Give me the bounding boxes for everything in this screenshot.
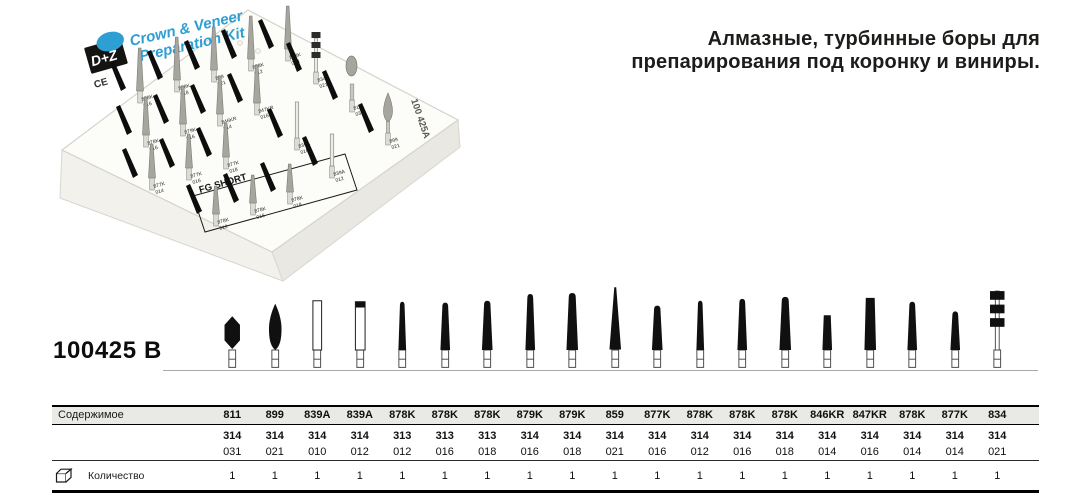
- bur-silhouette: [296, 274, 339, 370]
- row-quantity: Количество 1111111111111111111: [52, 461, 1039, 493]
- quantity-cell: 1: [466, 470, 509, 482]
- parcel-icon: [55, 468, 76, 484]
- bur-code-cell: 877K: [636, 407, 679, 424]
- bur-silhouette: [679, 274, 722, 370]
- bur-silhouette: [466, 274, 509, 370]
- iso-shank-cell: 313: [466, 430, 509, 442]
- lid-hole: [256, 49, 261, 54]
- row-size: 0310210100120120160180160180210160120160…: [52, 443, 1039, 461]
- size-cell: 016: [636, 446, 679, 458]
- size-cell: 031: [211, 446, 254, 458]
- size-cell: 012: [679, 446, 722, 458]
- iso-shank-cell: 313: [424, 430, 467, 442]
- quantity-cell: 1: [636, 470, 679, 482]
- iso-shank-cell: 314: [296, 430, 339, 442]
- quantity-cell: 1: [934, 470, 977, 482]
- heading-line-1: Алмазные, турбинные боры для: [480, 28, 1040, 51]
- bur-code-cell: 878K: [466, 407, 509, 424]
- bur-silhouette: [594, 274, 637, 370]
- bur-silhouette: [509, 274, 552, 370]
- iso-shank-cell: 314: [509, 430, 552, 442]
- bur-code-cell: 878K: [721, 407, 764, 424]
- size-cell: 016: [721, 446, 764, 458]
- bur-silhouette: [211, 274, 254, 370]
- size-cell: 018: [764, 446, 807, 458]
- bur-code-cell: 878K: [424, 407, 467, 424]
- bur-code-cell: 878K: [381, 407, 424, 424]
- bur-code-cell: 878K: [764, 407, 807, 424]
- quantity-cell: 1: [594, 470, 637, 482]
- bur-silhouette: [721, 274, 764, 370]
- bur-silhouette: [381, 274, 424, 370]
- product-photo: D+Z CE Crown & Veneer Preparation Kit FG…: [40, 0, 520, 300]
- bur-code-cell: 877K: [934, 407, 977, 424]
- bur-silhouette: [424, 274, 467, 370]
- iso-shank-cell: 314: [891, 430, 934, 442]
- iso-shank-cell: 314: [551, 430, 594, 442]
- iso-shank-cell: 314: [806, 430, 849, 442]
- bur-silhouette: [636, 274, 679, 370]
- bur-code-cell: 878K: [679, 407, 722, 424]
- page-heading: Алмазные, турбинные боры для препарирова…: [480, 28, 1040, 74]
- iso-shank-cell: 314: [254, 430, 297, 442]
- bur-code-cell: 879K: [551, 407, 594, 424]
- quantity-cell: 1: [424, 470, 467, 482]
- quantity-cell: 1: [976, 470, 1019, 482]
- iso-shank-cell: 314: [636, 430, 679, 442]
- bur-silhouette: [806, 274, 849, 370]
- bur-code-cell: 859: [594, 407, 637, 424]
- bur-code-cell: 878K: [891, 407, 934, 424]
- quantity-cell: 1: [296, 470, 339, 482]
- kit-logo: D+Z: [82, 29, 131, 74]
- heading-line-2: препарирования под коронку и виниры.: [480, 51, 1040, 74]
- iso-shank-cell: 314: [211, 430, 254, 442]
- ce-mark: CE: [93, 76, 110, 90]
- quantity-cell: 1: [381, 470, 424, 482]
- bur-code-cell: 879K: [509, 407, 552, 424]
- strip-baseline: [163, 370, 1038, 371]
- bur-code-cell: 846KR: [806, 407, 849, 424]
- bur-code-cell: 839A: [296, 407, 339, 424]
- bur-code-cell: 839A: [339, 407, 382, 424]
- contents-table: Содержимое 811899839A839A878K878K878K879…: [52, 405, 1039, 493]
- bur-code-cell: 899: [254, 407, 297, 424]
- size-cell: 014: [806, 446, 849, 458]
- iso-shank-cell: 313: [381, 430, 424, 442]
- quantity-cell: 1: [254, 470, 297, 482]
- iso-shank-cell: 314: [849, 430, 892, 442]
- quantity-cell: 1: [764, 470, 807, 482]
- size-cell: 021: [976, 446, 1019, 458]
- iso-shank-cell: 314: [679, 430, 722, 442]
- bur-silhouette: [849, 274, 892, 370]
- size-cell: 021: [254, 446, 297, 458]
- row-iso: 3143143143143133133133143143143143143143…: [52, 425, 1039, 443]
- size-cell: 012: [339, 446, 382, 458]
- iso-shank-cell: 314: [976, 430, 1019, 442]
- size-cell: 014: [934, 446, 977, 458]
- iso-shank-cell: 314: [721, 430, 764, 442]
- bur-code-cell: 847KR: [849, 407, 892, 424]
- size-cell: 016: [849, 446, 892, 458]
- size-cell: 016: [509, 446, 552, 458]
- size-cell: 016: [424, 446, 467, 458]
- iso-shank-cell: 314: [339, 430, 382, 442]
- quantity-cell: 1: [679, 470, 722, 482]
- quantity-cell: 1: [721, 470, 764, 482]
- quantity-label: Количество: [88, 470, 144, 482]
- bur-code-cell: 811: [211, 407, 254, 424]
- quantity-cell: 1: [339, 470, 382, 482]
- quantity-cell: 1: [509, 470, 552, 482]
- bur-silhouette: [551, 274, 594, 370]
- quantity-cell: 1: [551, 470, 594, 482]
- bur-silhouette: [891, 274, 934, 370]
- bur-silhouette: [976, 274, 1019, 370]
- iso-shank-cell: 314: [934, 430, 977, 442]
- row-codes: Содержимое 811899839A839A878K878K878K879…: [52, 405, 1039, 425]
- quantity-cell: 1: [806, 470, 849, 482]
- catalog-page: D+Z CE Crown & Veneer Preparation Kit FG…: [0, 0, 1068, 500]
- bur-silhouette: [934, 274, 977, 370]
- product-code: 100425 B: [53, 337, 162, 365]
- bur-silhouette-strip: [211, 274, 1019, 370]
- iso-shank-cell: 314: [764, 430, 807, 442]
- bur-silhouette: [254, 274, 297, 370]
- quantity-cell: 1: [849, 470, 892, 482]
- size-cell: 018: [466, 446, 509, 458]
- contents-label: Содержимое: [52, 407, 211, 424]
- size-cell: 021: [594, 446, 637, 458]
- bur-silhouette: [339, 274, 382, 370]
- quantity-cell: 1: [891, 470, 934, 482]
- iso-shank-cell: 314: [594, 430, 637, 442]
- quantity-cell: 1: [211, 470, 254, 482]
- size-cell: 010: [296, 446, 339, 458]
- bur-silhouette: [764, 274, 807, 370]
- size-cell: 014: [891, 446, 934, 458]
- size-cell: 012: [381, 446, 424, 458]
- bur-code-cell: 834: [976, 407, 1019, 424]
- size-cell: 018: [551, 446, 594, 458]
